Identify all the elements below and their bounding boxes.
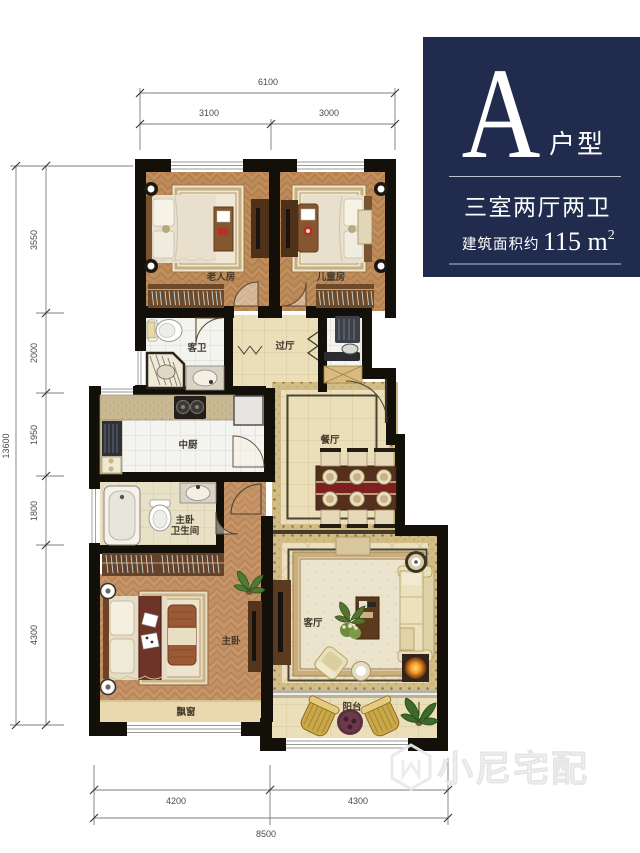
svg-text:小尼宅配: 小尼宅配 bbox=[437, 748, 589, 789]
svg-text:阳台: 阳台 bbox=[342, 701, 362, 713]
svg-text:6100: 6100 bbox=[258, 77, 278, 87]
svg-text:卫生间: 卫生间 bbox=[171, 525, 200, 537]
svg-text:客厅: 客厅 bbox=[302, 617, 323, 629]
svg-text:客卫: 客卫 bbox=[186, 342, 207, 354]
svg-text:户型: 户型 bbox=[549, 130, 605, 159]
svg-text:3000: 3000 bbox=[319, 108, 339, 118]
svg-text:4300: 4300 bbox=[348, 796, 368, 806]
svg-text:8500: 8500 bbox=[256, 829, 276, 839]
svg-text:1950: 1950 bbox=[29, 425, 39, 445]
svg-text:4200: 4200 bbox=[166, 796, 186, 806]
svg-text:儿童房: 儿童房 bbox=[316, 271, 346, 283]
svg-text:2000: 2000 bbox=[29, 343, 39, 363]
svg-text:1800: 1800 bbox=[29, 501, 39, 521]
svg-text:三室两厅两卫: 三室两厅两卫 bbox=[464, 195, 611, 220]
svg-text:3550: 3550 bbox=[29, 230, 39, 250]
svg-text:13600: 13600 bbox=[1, 433, 11, 458]
svg-text:老人房: 老人房 bbox=[206, 271, 236, 283]
svg-text:主卧: 主卧 bbox=[221, 635, 241, 647]
svg-text:4300: 4300 bbox=[29, 625, 39, 645]
svg-text:中厨: 中厨 bbox=[178, 439, 198, 451]
svg-text:主卧: 主卧 bbox=[175, 514, 195, 526]
svg-text:3100: 3100 bbox=[199, 108, 219, 118]
svg-text:飘窗: 飘窗 bbox=[175, 706, 196, 718]
svg-text:115 m2: 115 m2 bbox=[543, 227, 615, 256]
svg-text:餐厅: 餐厅 bbox=[319, 434, 340, 446]
svg-text:建筑面积约: 建筑面积约 bbox=[462, 236, 540, 253]
svg-text:过厅: 过厅 bbox=[275, 340, 295, 352]
svg-text:A: A bbox=[462, 41, 541, 185]
